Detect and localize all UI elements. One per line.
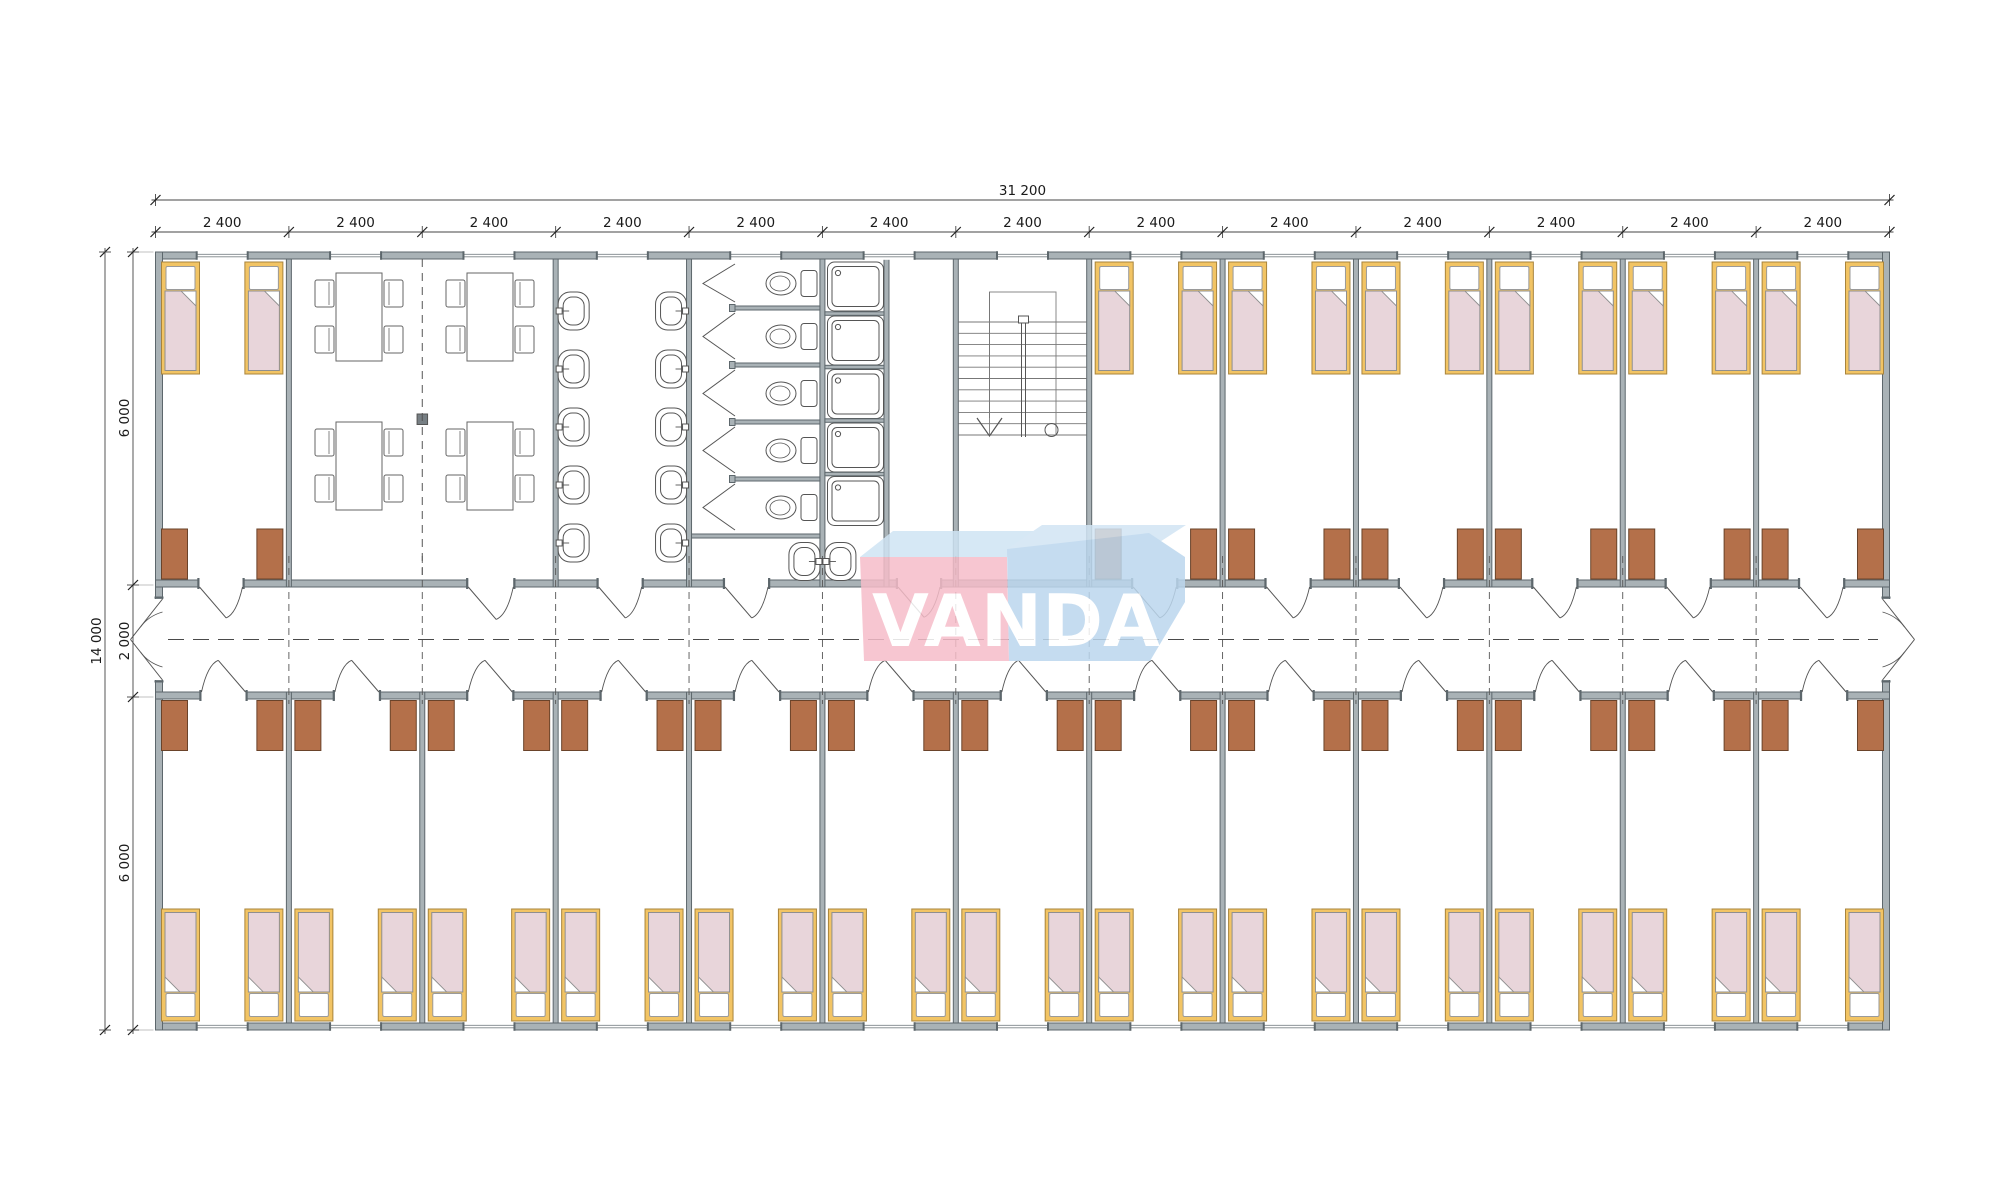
- bed: [1229, 262, 1267, 374]
- window: [331, 1022, 381, 1031]
- door-opening: [1533, 578, 1576, 589]
- stall-divider: [735, 306, 820, 310]
- chair: [515, 429, 534, 456]
- wardrobe: [1229, 701, 1255, 751]
- bed-pillow: [1850, 994, 1879, 1017]
- wall-partition-upper: [1487, 259, 1492, 587]
- door-leaf: [885, 660, 912, 692]
- stair-flight-outline: [990, 292, 1057, 435]
- wardrobe: [162, 529, 188, 579]
- bed-blanket: [1182, 291, 1213, 371]
- toilet-bowl: [766, 496, 796, 519]
- window: [1798, 251, 1848, 260]
- bed-blanket: [432, 913, 463, 993]
- bed: [1495, 909, 1533, 1021]
- window: [1664, 1022, 1714, 1031]
- window: [597, 251, 647, 260]
- wardrobe: [1362, 701, 1388, 751]
- bed: [1495, 262, 1533, 374]
- wash-basin: [656, 466, 689, 504]
- door-swing-arc: [1535, 660, 1552, 692]
- wall-partition-lower: [1487, 692, 1492, 1023]
- window: [997, 251, 1047, 260]
- door-leaf: [1419, 660, 1446, 692]
- chair: [315, 429, 334, 456]
- bed-pillow: [783, 994, 812, 1017]
- window: [864, 251, 914, 260]
- toilet: [766, 271, 817, 297]
- bed-blanket: [1499, 291, 1530, 371]
- window-jamb: [1396, 1022, 1398, 1031]
- door-leaf: [200, 587, 227, 618]
- wardrobe: [1095, 701, 1121, 751]
- door-swing-arc: [1135, 660, 1152, 692]
- bed-pillow: [1183, 267, 1212, 290]
- door-leaf: [752, 660, 779, 692]
- bed-blanket: [1716, 291, 1747, 371]
- bed-blanket: [832, 913, 863, 993]
- door-jamb: [1881, 597, 1890, 599]
- wardrobe: [428, 701, 454, 751]
- bed-blanket: [1766, 913, 1797, 993]
- bed-pillow: [1633, 994, 1662, 1017]
- door-opening: [1535, 690, 1579, 701]
- window-jamb: [1180, 251, 1182, 260]
- door-opening: [1402, 690, 1446, 701]
- basin-tap: [556, 308, 562, 314]
- bed-pillow: [650, 994, 679, 1017]
- basin-tap: [556, 424, 562, 430]
- bed-pillow: [1100, 994, 1129, 1017]
- wardrobe: [1591, 701, 1617, 751]
- door-swing-arc: [1269, 660, 1286, 692]
- window-jamb: [1581, 251, 1583, 260]
- window: [1798, 1022, 1848, 1031]
- door-opening: [1800, 578, 1843, 589]
- door-leaf: [1285, 660, 1312, 692]
- bed: [295, 909, 333, 1021]
- wardrobe: [962, 701, 988, 751]
- chair: [315, 280, 334, 307]
- bed-pillow: [249, 267, 278, 290]
- bed-pillow: [383, 994, 412, 1017]
- wash-basin: [656, 292, 689, 330]
- door-leaf: [1267, 587, 1294, 618]
- bed: [378, 909, 416, 1021]
- toilet-room-divider: [692, 534, 820, 538]
- door-opening: [335, 690, 379, 701]
- bed-blanket: [382, 913, 413, 993]
- window-jamb: [1663, 251, 1665, 260]
- wardrobe: [1629, 529, 1655, 579]
- bed-blanket: [248, 291, 279, 371]
- vanda-logo: VANDA: [860, 525, 1186, 663]
- window-jamb: [462, 1022, 464, 1031]
- wardrobe: [295, 701, 321, 751]
- dim-left-segment-bottom: 6 000: [117, 844, 133, 883]
- door-leaf: [725, 587, 752, 618]
- door-leaf: [1685, 660, 1712, 692]
- wardrobe: [657, 701, 683, 751]
- bed-blanket: [248, 913, 279, 993]
- dim-overall-height: 14 000: [89, 617, 105, 664]
- window: [1131, 1022, 1181, 1031]
- window-jamb: [329, 1022, 331, 1031]
- bed: [1229, 909, 1267, 1021]
- bed-pillow: [1850, 267, 1879, 290]
- door-leaf: [468, 587, 496, 619]
- window: [1531, 1022, 1581, 1031]
- shower-tray-inner: [832, 428, 879, 468]
- wall-partition-lower: [820, 692, 825, 1023]
- wardrobe: [524, 701, 550, 751]
- bed-blanket: [1632, 291, 1663, 371]
- dim-segment-label: 2 400: [1137, 215, 1176, 231]
- dim-left-segment-top: 6 000: [117, 399, 133, 438]
- bed-blanket: [1315, 913, 1346, 993]
- window: [1664, 251, 1714, 260]
- door-leaf: [352, 660, 379, 692]
- bed-pillow: [566, 994, 595, 1017]
- bed-pillow: [1366, 267, 1395, 290]
- toilet-bowl: [766, 382, 796, 405]
- window-jamb: [1530, 251, 1532, 260]
- bed: [1045, 909, 1083, 1021]
- stall-door-leaf: [703, 427, 735, 473]
- basin-tap: [823, 559, 829, 565]
- bed-blanket: [565, 913, 596, 993]
- wash-basin: [556, 408, 589, 446]
- door-jamb: [1881, 680, 1890, 682]
- window-jamb: [196, 1022, 198, 1031]
- dim-segment-label: 2 400: [1803, 215, 1842, 231]
- basin-tap: [683, 366, 689, 372]
- door-opening: [1669, 690, 1713, 701]
- bed-blanket: [515, 913, 546, 993]
- door-swing-arc: [625, 587, 641, 618]
- floor-plan-page: VANDA 31 200 14 000 6 000 2 000 6 000 2 …: [0, 0, 2000, 1200]
- shower-tray-inner: [832, 374, 879, 414]
- bed: [162, 262, 200, 374]
- basin-tap: [556, 540, 562, 546]
- bed-pillow: [1316, 267, 1345, 290]
- door-swing-arc: [868, 660, 885, 692]
- bed-pillow: [1767, 994, 1796, 1017]
- door-swing-arc: [1293, 587, 1309, 618]
- stairs: [958, 292, 1086, 437]
- window-jamb: [596, 1022, 598, 1031]
- door-swing-arc: [335, 660, 352, 692]
- stall-door-post: [730, 362, 736, 369]
- door-leaf: [1533, 587, 1560, 618]
- bed-pillow: [966, 994, 995, 1017]
- door-opening: [1135, 690, 1179, 701]
- wardrobe: [828, 701, 854, 751]
- bed-pillow: [1633, 267, 1662, 290]
- window-jamb: [1447, 1022, 1449, 1031]
- bed: [1179, 909, 1217, 1021]
- door-swing-arc: [1669, 660, 1686, 692]
- bed-blanket: [1315, 291, 1346, 371]
- wardrobe: [257, 701, 283, 751]
- wardrobe: [1724, 529, 1750, 579]
- bed-blanket: [1849, 291, 1880, 371]
- shower-tray: [828, 370, 884, 419]
- toilet: [766, 495, 817, 521]
- wardrobe: [1591, 529, 1617, 579]
- window-jamb: [914, 251, 916, 260]
- shower-divider: [825, 365, 884, 369]
- door-swing-arc: [226, 587, 242, 618]
- window-jamb: [1714, 1022, 1716, 1031]
- window: [731, 251, 781, 260]
- floor-plan-drawing: VANDA 31 200 14 000 6 000 2 000 6 000 2 …: [0, 0, 2000, 1200]
- bed-pillow: [1050, 994, 1079, 1017]
- bed-blanket: [1099, 291, 1130, 371]
- dim-segment-label: 2 400: [1003, 215, 1042, 231]
- bed: [1762, 909, 1800, 1021]
- basin-tap: [556, 482, 562, 488]
- door-swing-arc: [1693, 587, 1709, 618]
- window-jamb: [1314, 251, 1316, 260]
- wardrobe: [1629, 701, 1655, 751]
- toilet-bowl: [766, 439, 796, 462]
- bed: [1629, 909, 1667, 1021]
- bed-pillow: [1100, 267, 1129, 290]
- end-door-opening: [155, 599, 164, 680]
- door-jamb: [155, 597, 164, 599]
- window-jamb: [1447, 251, 1449, 260]
- wardrobe: [1457, 701, 1483, 751]
- wardrobe: [257, 529, 283, 579]
- window-jamb: [1663, 1022, 1665, 1031]
- bed-blanket: [1049, 913, 1080, 993]
- bed: [962, 909, 1000, 1021]
- logo-text: VANDA: [872, 579, 1160, 663]
- bed: [1712, 909, 1750, 1021]
- window: [197, 251, 247, 260]
- bed-blanket: [1582, 291, 1613, 371]
- bed-pillow: [249, 994, 278, 1017]
- door-opening: [1802, 690, 1846, 701]
- window-jamb: [863, 251, 865, 260]
- wall-partition-lower: [1353, 692, 1358, 1023]
- window: [464, 251, 514, 260]
- bed-blanket: [1632, 913, 1663, 993]
- wardrobe: [1724, 701, 1750, 751]
- bed: [162, 909, 200, 1021]
- bed: [1179, 262, 1217, 374]
- bed-blanket: [1232, 913, 1263, 993]
- toilet-tank: [801, 438, 817, 464]
- toilet-bowl: [766, 272, 796, 295]
- stall-door-post: [730, 419, 736, 426]
- shower-divider: [825, 472, 884, 476]
- door-leaf: [1667, 587, 1694, 618]
- bed: [1095, 262, 1133, 374]
- chair: [315, 475, 334, 502]
- bed: [1445, 909, 1483, 1021]
- stall-door-leaf: [703, 313, 735, 359]
- chair: [515, 475, 534, 502]
- wall-partition-lower: [286, 692, 291, 1023]
- chair: [446, 280, 465, 307]
- window: [1131, 251, 1181, 260]
- bed: [562, 909, 600, 1021]
- shower-tray-inner: [832, 481, 879, 521]
- bed: [1845, 262, 1883, 374]
- window-jamb: [247, 251, 249, 260]
- dim-overall-width: 31 200: [999, 183, 1046, 199]
- bed: [695, 909, 733, 1021]
- bed-pillow: [166, 267, 195, 290]
- bed-blanket: [1449, 291, 1480, 371]
- bed-blanket: [165, 291, 196, 371]
- door-opening: [868, 690, 912, 701]
- door-swing-arc: [1827, 587, 1843, 618]
- bed-pillow: [1366, 994, 1395, 1017]
- bed-pillow: [1717, 994, 1746, 1017]
- toilet: [766, 381, 817, 407]
- bed-blanket: [915, 913, 946, 993]
- shower-tray: [828, 477, 884, 526]
- bed: [1445, 262, 1483, 374]
- bed: [428, 909, 466, 1021]
- bed-pillow: [1316, 994, 1345, 1017]
- wall-partition-lower: [1620, 692, 1625, 1023]
- stall-divider: [735, 363, 820, 367]
- stair-rail-cap: [1019, 316, 1029, 323]
- door-swing-arc: [1002, 660, 1019, 692]
- window-jamb: [1847, 251, 1849, 260]
- wall-partition-upper: [1353, 259, 1358, 587]
- chair: [446, 429, 465, 456]
- window-jamb: [1047, 1022, 1049, 1031]
- door-leaf: [1019, 660, 1046, 692]
- window-jamb: [1796, 1022, 1798, 1031]
- door-opening: [1269, 690, 1313, 701]
- door-opening: [602, 690, 646, 701]
- basin-tap: [683, 482, 689, 488]
- wall-partition-lower: [420, 692, 425, 1023]
- bed-pillow: [1500, 994, 1529, 1017]
- bed: [1712, 262, 1750, 374]
- window-jamb: [1263, 251, 1265, 260]
- door-leaf: [218, 660, 245, 692]
- bed-pillow: [1183, 994, 1212, 1017]
- stall-door-leaf: [703, 370, 735, 416]
- wall-partition-upper: [286, 259, 291, 587]
- bed-blanket: [1582, 913, 1613, 993]
- chair: [384, 326, 403, 353]
- window-jamb: [1714, 251, 1716, 260]
- window-jamb: [462, 251, 464, 260]
- shower-tray: [828, 262, 884, 311]
- wardrobe: [1457, 529, 1483, 579]
- wardrobe: [1495, 529, 1521, 579]
- bed-blanket: [1849, 913, 1880, 993]
- door-leaf: [1819, 660, 1846, 692]
- window-jamb: [996, 251, 998, 260]
- bed-pillow: [1767, 267, 1796, 290]
- door-swing-arc: [735, 660, 752, 692]
- wall-partition-upper: [820, 259, 825, 587]
- door-swing-arc: [496, 587, 513, 619]
- bed-pillow: [700, 994, 729, 1017]
- stall-door-post: [730, 476, 736, 483]
- dim-segment-label: 2 400: [1403, 215, 1442, 231]
- bed: [1762, 262, 1800, 374]
- dining-table: [336, 273, 382, 361]
- window-jamb: [329, 251, 331, 260]
- dim-segment-label: 2 400: [1537, 215, 1576, 231]
- chair: [446, 475, 465, 502]
- chair: [515, 280, 534, 307]
- door-swing-arc: [1560, 587, 1576, 618]
- window: [597, 1022, 647, 1031]
- window-jamb: [647, 1022, 649, 1031]
- wardrobe: [1191, 529, 1217, 579]
- wardrobe: [695, 701, 721, 751]
- door-opening: [468, 690, 512, 701]
- stall-divider: [735, 477, 820, 481]
- bed: [512, 909, 550, 1021]
- window: [1531, 251, 1581, 260]
- bed-pillow: [166, 994, 195, 1017]
- bed: [1312, 262, 1350, 374]
- bed-blanket: [1182, 913, 1213, 993]
- bed-pillow: [1500, 267, 1529, 290]
- shower-tray: [828, 423, 884, 472]
- window-jamb: [729, 251, 731, 260]
- basin-tap: [683, 540, 689, 546]
- bed: [645, 909, 683, 1021]
- bed-pillow: [1583, 994, 1612, 1017]
- bed-pillow: [1717, 267, 1746, 290]
- window-jamb: [196, 251, 198, 260]
- basin-tap: [683, 424, 689, 430]
- wardrobe: [390, 701, 416, 751]
- toilet: [766, 324, 817, 350]
- bed-pillow: [1233, 267, 1262, 290]
- door-swing-arc: [468, 660, 485, 692]
- window-jamb: [1796, 251, 1798, 260]
- chair: [384, 475, 403, 502]
- wardrobe: [1495, 701, 1521, 751]
- bed: [1629, 262, 1667, 374]
- wall-partition-lower: [553, 692, 558, 1023]
- bed-pillow: [916, 994, 945, 1017]
- bed: [1579, 262, 1617, 374]
- door-opening: [599, 578, 642, 589]
- bed: [912, 909, 950, 1021]
- wash-basin: [556, 350, 589, 388]
- bed-pillow: [433, 994, 462, 1017]
- dim-segment-label: 2 400: [870, 215, 909, 231]
- wardrobe: [790, 701, 816, 751]
- wash-basin: [789, 543, 822, 581]
- wall-partition-upper: [1220, 259, 1225, 587]
- shower-divider: [825, 419, 884, 423]
- wardrobe: [162, 701, 188, 751]
- door-leaf: [485, 660, 512, 692]
- bed-pillow: [1450, 994, 1479, 1017]
- wardrobe: [1362, 529, 1388, 579]
- dim-segment-label: 2 400: [1270, 215, 1309, 231]
- dining-table: [467, 422, 513, 510]
- window: [1264, 251, 1314, 260]
- wardrobe: [1857, 701, 1883, 751]
